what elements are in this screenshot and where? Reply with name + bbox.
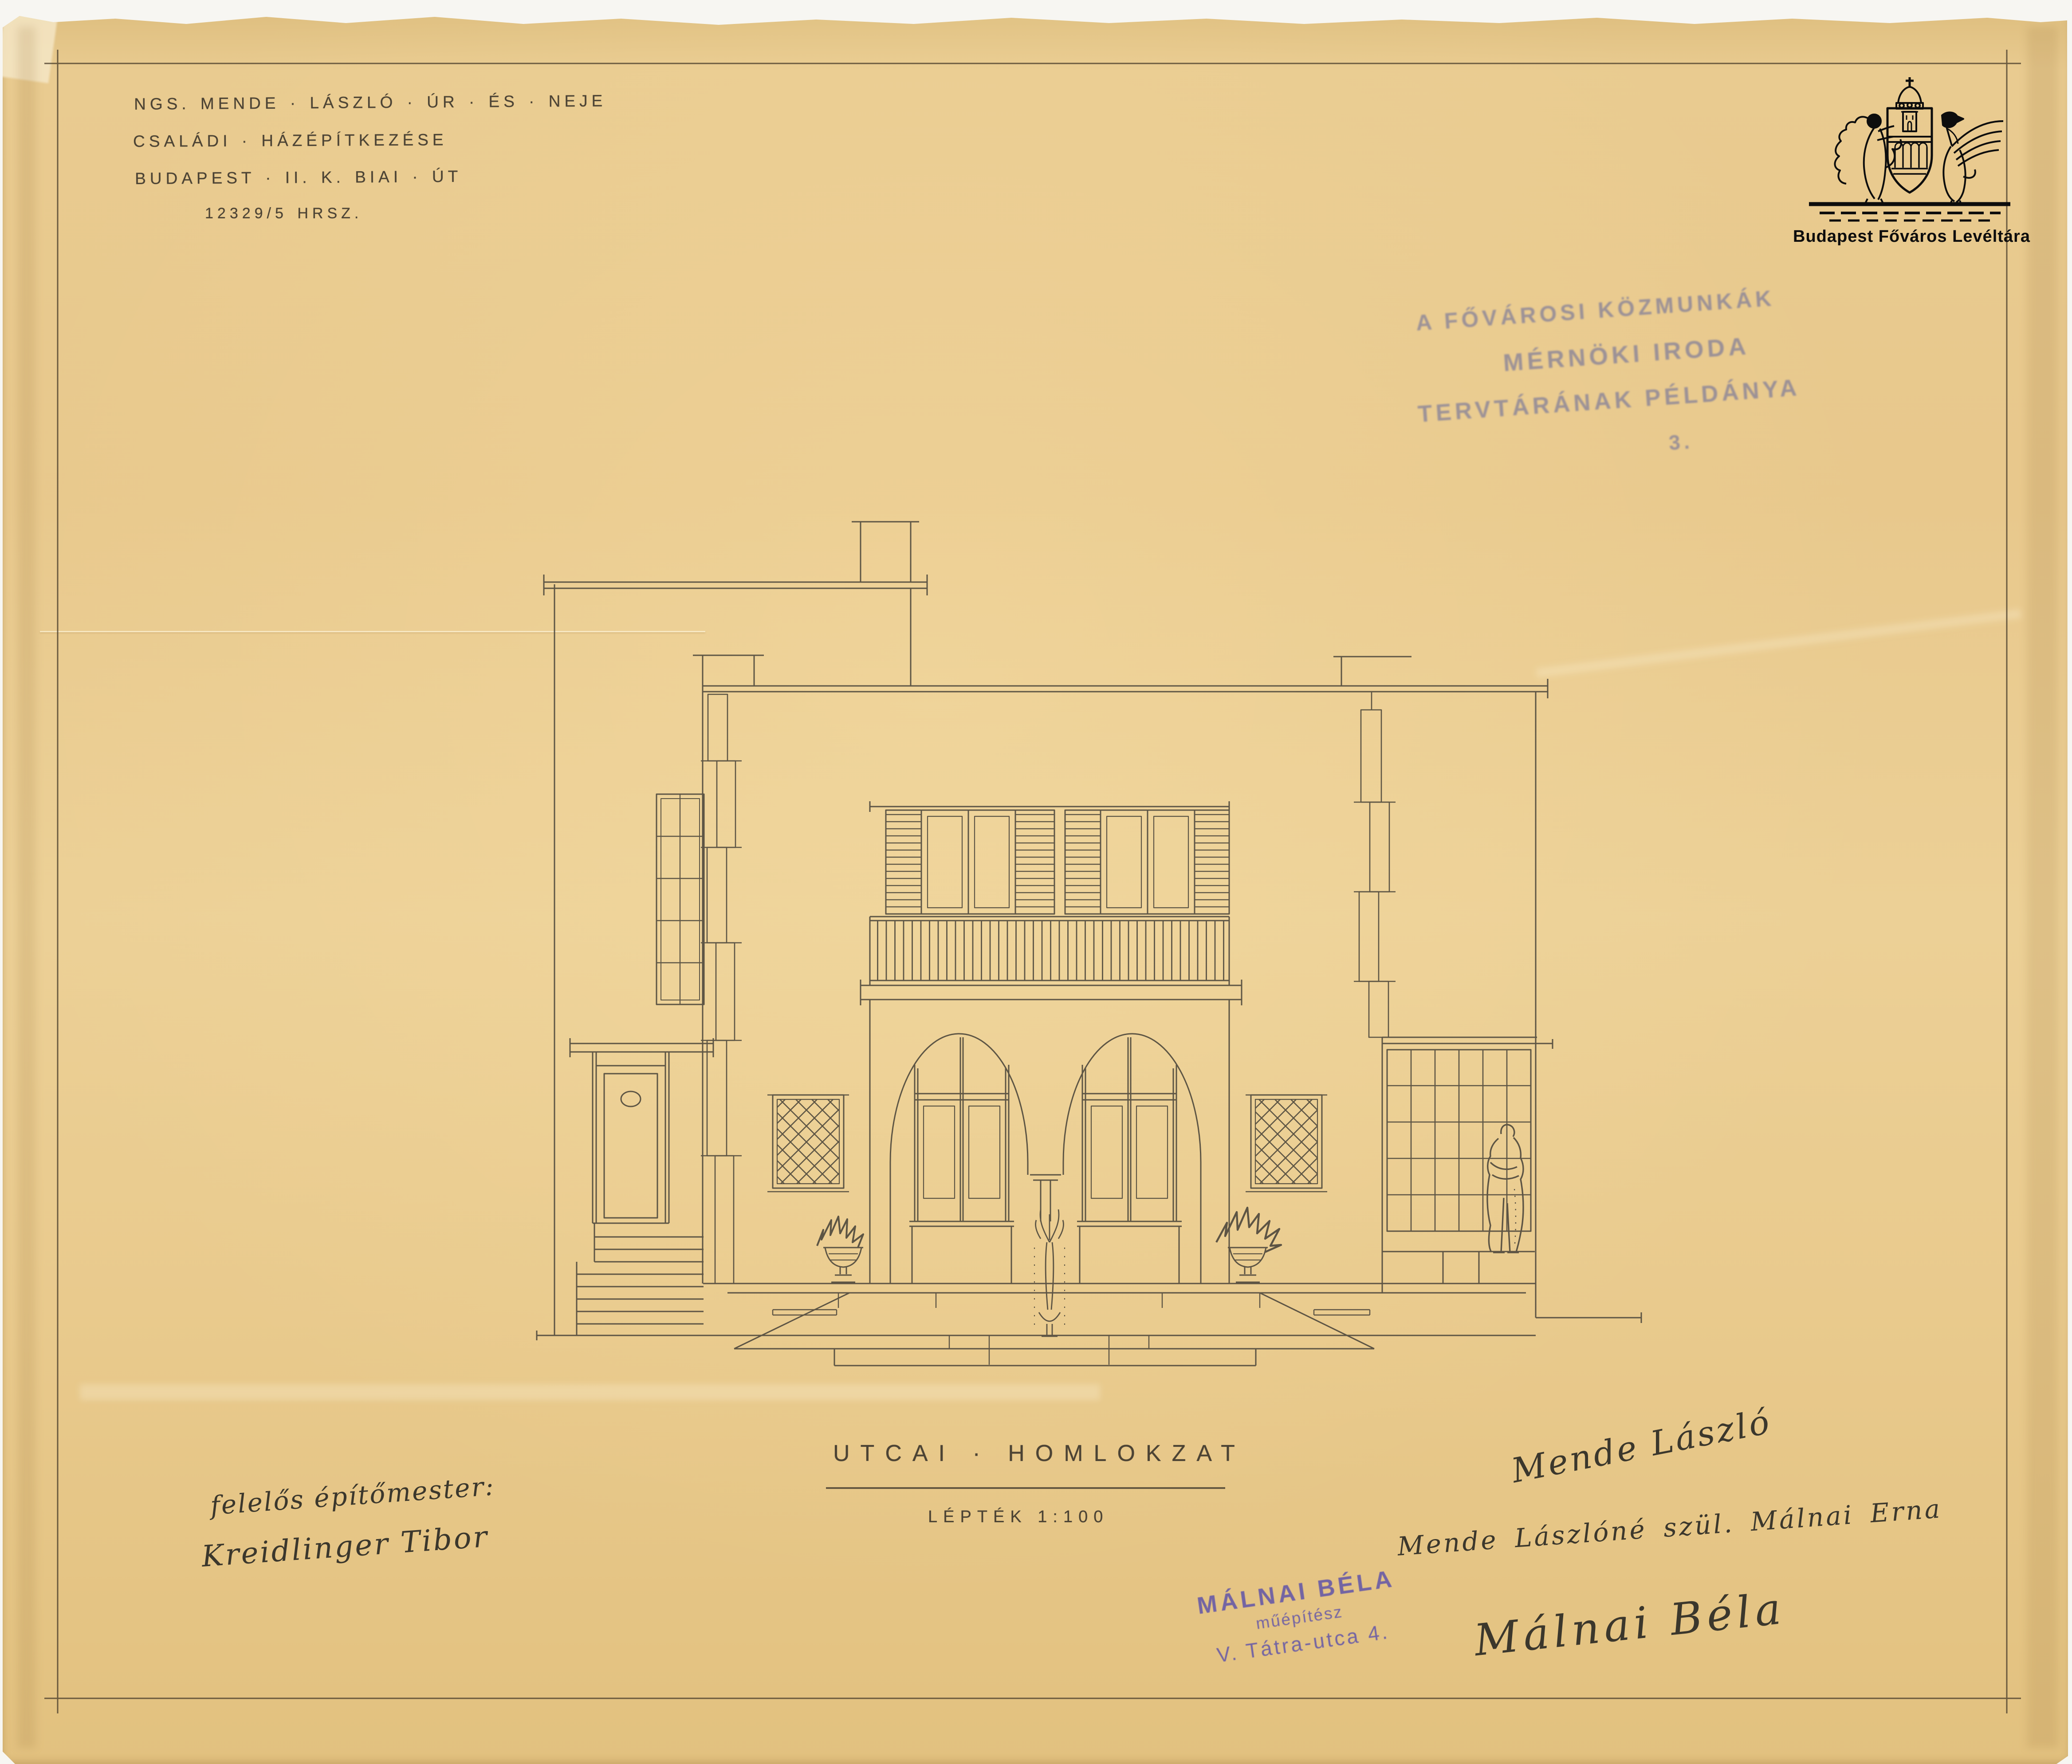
balcony-slab: [861, 980, 1242, 1005]
arch-right: [1063, 1034, 1201, 1284]
parapet-step-left: [693, 655, 764, 686]
project-line-3: BUDAPEST · II. K. BIAI · ÚT: [135, 167, 462, 188]
door-porthole: [621, 1091, 641, 1106]
entrance-door: [604, 1074, 657, 1218]
archive-stamp: A FŐVÁROSI KÖZMUNKÁK MÉRNÖKI IRODA TERVT…: [1411, 284, 1804, 472]
fountain: [1034, 1209, 1065, 1336]
plant-foliage: [817, 1217, 863, 1248]
title-underline: [826, 1487, 1225, 1489]
drawing-scale: LÉPTÉK 1:100: [928, 1508, 1109, 1527]
shutter-band: [870, 801, 1229, 914]
winter-garden: [1382, 1037, 1641, 1323]
archive-stamp-line-2: MÉRNÖKI IRODA: [1502, 328, 1798, 377]
terrace-front: [834, 1349, 1256, 1366]
wing-plinth: [1382, 1252, 1535, 1284]
downspout-left: [701, 694, 742, 1284]
wing-roof: [1382, 1037, 1553, 1049]
ground-right: [1536, 1293, 1641, 1323]
crown-icon: [1896, 77, 1923, 109]
scanned-paper-sheet: NGS. MENDE · LÁSZLÓ · ÚR · ÉS · NEJE CSA…: [0, 0, 2072, 1764]
drawing-title: UTCAI · HOMLOKZAT: [833, 1440, 1246, 1467]
project-line-4: 12329/5 HRSZ.: [205, 205, 362, 222]
stair-tower: [657, 794, 704, 1004]
terrace-side-steps: [734, 1293, 1374, 1349]
lattice-windows: [767, 1095, 1327, 1192]
logo-ground: [1809, 204, 2010, 220]
lion-icon: [1835, 114, 1901, 204]
parapet: [703, 679, 1548, 698]
elevation-drawing: [537, 522, 1641, 1366]
door-canopy: [570, 1038, 713, 1057]
arcade: [890, 1034, 1201, 1284]
plant-foliage: [1216, 1208, 1281, 1252]
entrance: [570, 1038, 713, 1335]
center-column: [1030, 1175, 1061, 1221]
parapet-step-right: [1333, 657, 1411, 686]
archive-stamp-line-3: TERVTÁRÁNAK PÉLDÁNYA: [1417, 374, 1801, 428]
griffin-icon: [1942, 112, 2003, 205]
archive-logo-caption: Budapest Főváros Levéltára: [1793, 227, 2024, 246]
entrance-steps: [577, 1223, 704, 1335]
chimney: [852, 522, 919, 582]
arch-left: [890, 1034, 1028, 1284]
planter-left: [817, 1217, 863, 1282]
planter-right: [1216, 1208, 1281, 1282]
project-line-1: NGS. MENDE · LÁSZLÓ · ÚR · ÉS · NEJE: [134, 92, 606, 114]
downspout-right: [1354, 692, 1396, 1037]
project-line-2: CSALÁDI · HÁZÉPÍTKEZÉSE: [133, 130, 448, 151]
statue-figure: [1487, 1125, 1523, 1252]
ground-line: [537, 1331, 1536, 1340]
bfl-coat-of-arms: [1809, 77, 2010, 220]
